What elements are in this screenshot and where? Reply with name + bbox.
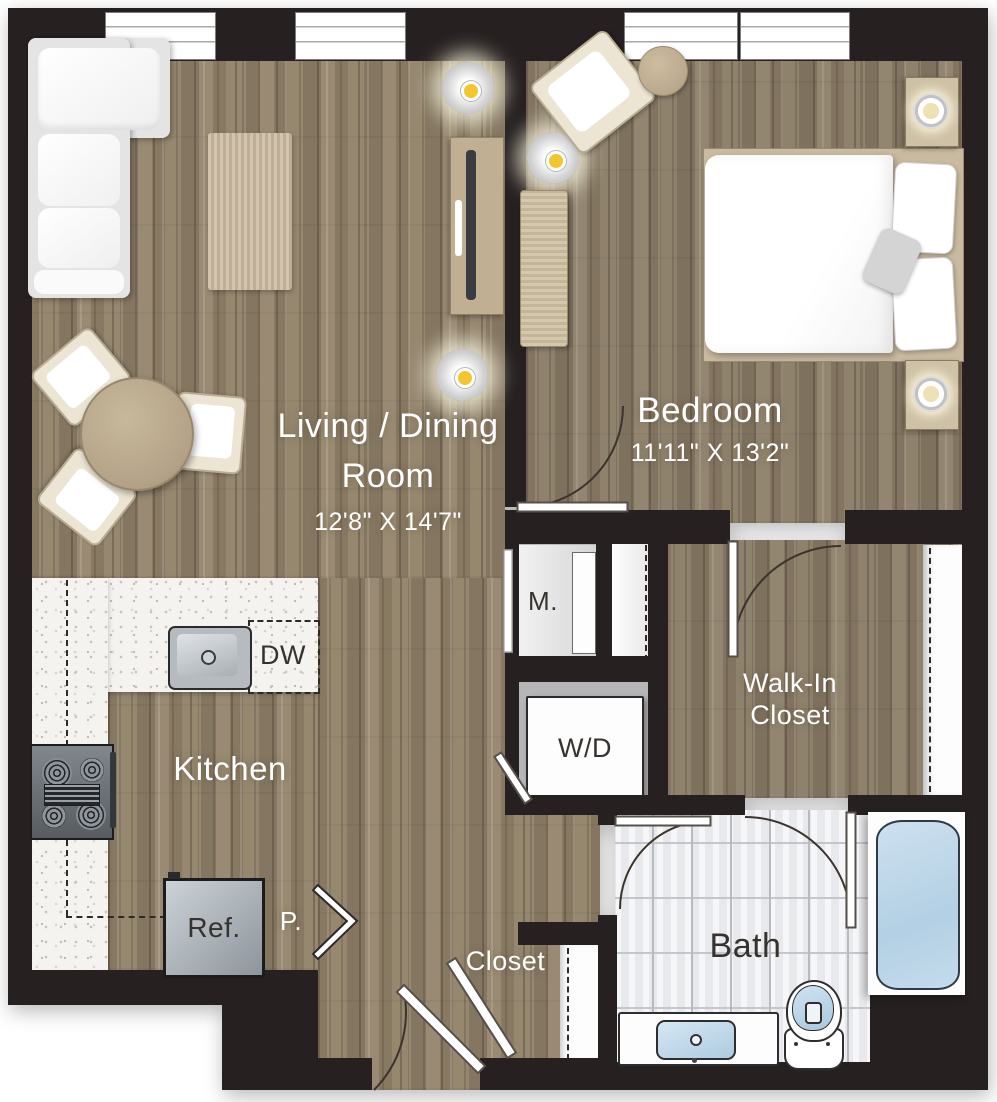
bench bbox=[520, 190, 568, 347]
toilet bbox=[782, 980, 842, 1068]
bathtub bbox=[868, 812, 965, 995]
toilet-flush-button bbox=[805, 1002, 822, 1024]
stove-burner bbox=[80, 758, 104, 782]
bedroom-dimensions: 11'11" X 13'2" bbox=[560, 439, 860, 469]
stove-burner bbox=[42, 804, 66, 828]
closet-rod bbox=[645, 545, 647, 671]
sofa-cushion bbox=[38, 134, 120, 206]
wall-mid-band-east bbox=[845, 510, 965, 544]
wall-entry-corner-block bbox=[222, 970, 318, 1090]
toilet-bolt bbox=[794, 1042, 798, 1046]
bathtub-basin bbox=[876, 820, 960, 990]
wall-mech-linen-divider bbox=[596, 540, 612, 660]
entry-closet-label: Closet bbox=[448, 946, 563, 978]
stove bbox=[30, 744, 114, 840]
closet-rod bbox=[929, 548, 931, 792]
bed-duvet bbox=[705, 155, 893, 353]
kitchen-label: Kitchen bbox=[150, 750, 310, 789]
kitchen-sink bbox=[168, 626, 252, 690]
bedroom-label: Bedroom 11'11" X 13'2" bbox=[560, 390, 860, 469]
dining-table bbox=[80, 377, 194, 491]
wall-bottom-east-of-door bbox=[480, 1058, 598, 1090]
sink-drain bbox=[201, 650, 216, 665]
table-lamp bbox=[913, 93, 949, 129]
mech-closet-shelf bbox=[572, 552, 596, 654]
sofa-armrest bbox=[34, 270, 124, 294]
ceiling-light bbox=[436, 349, 488, 401]
toilet-bolt bbox=[826, 1042, 830, 1046]
table-lamp bbox=[913, 376, 949, 412]
wall-right bbox=[962, 8, 988, 1076]
tv-soundbar bbox=[455, 200, 462, 256]
wall-mid-band-west bbox=[505, 510, 730, 544]
side-table bbox=[638, 46, 688, 96]
pantry-text: P. bbox=[280, 906, 302, 936]
closet-rod bbox=[567, 948, 569, 1060]
bath-vanity bbox=[618, 1012, 779, 1066]
bath-label: Bath bbox=[688, 926, 803, 966]
stove-grill bbox=[44, 784, 100, 806]
walk-in-closet-line2: Closet bbox=[700, 700, 880, 732]
refrigerator-hinge bbox=[168, 872, 180, 879]
floor-plan-image: W/D bbox=[0, 0, 997, 1102]
dishwasher-label: DW bbox=[248, 640, 318, 672]
bedroom-name: Bedroom bbox=[560, 390, 860, 431]
mech-closet-text: M. bbox=[528, 586, 558, 616]
sofa-cushion bbox=[38, 208, 120, 268]
living-room-name-line1: Living / Dining bbox=[238, 406, 538, 446]
refrigerator-label: Ref. bbox=[187, 911, 240, 944]
sofa bbox=[28, 38, 170, 298]
wall-entry-closet-top bbox=[518, 922, 612, 945]
washer-dryer-label: W/D bbox=[558, 733, 612, 765]
pantry-label: P. bbox=[270, 906, 312, 937]
kitchen-name: Kitchen bbox=[173, 750, 287, 787]
sofa-cushion bbox=[38, 48, 160, 130]
cabinet-dashed-line bbox=[66, 916, 166, 918]
window bbox=[295, 12, 406, 60]
mech-closet-label: M. bbox=[520, 586, 566, 617]
living-room-name-line2: Room bbox=[238, 456, 538, 496]
wall-below-mech bbox=[505, 656, 662, 682]
wall-bath-north-west bbox=[505, 795, 745, 815]
stove-knob-panel bbox=[110, 752, 116, 828]
refrigerator: Ref. bbox=[163, 878, 265, 978]
walk-in-closet-label: Walk-In Closet bbox=[700, 668, 880, 732]
wall-bath-west-upper bbox=[598, 812, 617, 825]
dishwasher-text: DW bbox=[260, 640, 306, 670]
window bbox=[740, 12, 850, 60]
vanity-drain bbox=[690, 1034, 702, 1046]
entry-closet-name: Closet bbox=[466, 946, 546, 976]
tv bbox=[466, 150, 476, 300]
bath-name: Bath bbox=[710, 927, 782, 965]
washer-dryer-unit: W/D bbox=[526, 696, 644, 802]
area-rug bbox=[208, 133, 292, 290]
vanity-faucet bbox=[692, 1058, 697, 1063]
walk-in-closet-line1: Walk-In bbox=[700, 668, 880, 700]
living-room-label: Living / Dining Room 12'8" X 14'7" bbox=[238, 406, 538, 538]
wall-bath-corner-block bbox=[870, 995, 988, 1080]
ceiling-light bbox=[442, 62, 494, 114]
entry-closet-shelf bbox=[560, 945, 600, 1062]
wall-bottom-west-of-door bbox=[318, 1058, 372, 1090]
chair-cushion bbox=[187, 403, 235, 459]
wall-walkin-west bbox=[648, 540, 668, 812]
living-room-dimensions: 12'8" X 14'7" bbox=[238, 508, 538, 538]
floor-plan: W/D bbox=[0, 0, 997, 1102]
